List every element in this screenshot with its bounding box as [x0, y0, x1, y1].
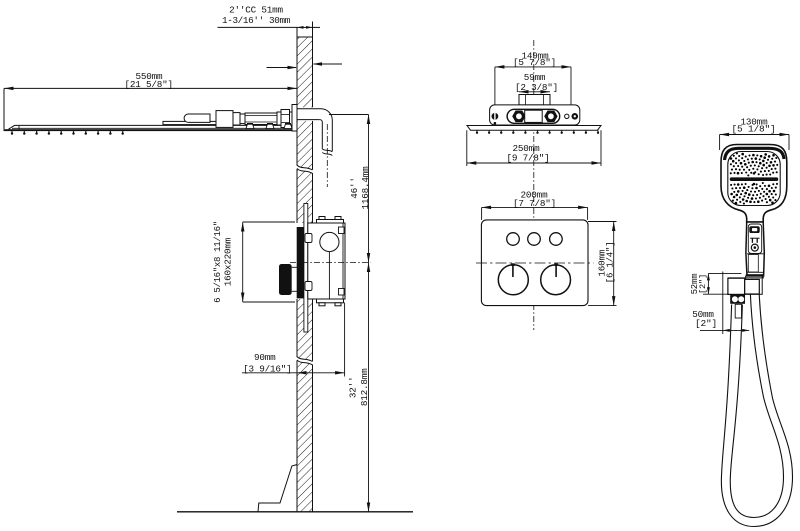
svg-text:1168.4mm: 1168.4mm	[360, 166, 371, 210]
svg-text:90mm: 90mm	[254, 352, 276, 363]
svg-text:812.8mm: 812.8mm	[359, 368, 370, 406]
svg-text:[2"]: [2"]	[695, 318, 717, 329]
svg-text:2''CC 51mm: 2''CC 51mm	[229, 5, 283, 16]
svg-text:[5 7/8"]: [5 7/8"]	[513, 57, 556, 68]
svg-text:46'': 46''	[349, 177, 360, 199]
svg-text:32'': 32''	[348, 377, 359, 399]
svg-text:1-3/16'' 30mm: 1-3/16'' 30mm	[222, 15, 291, 26]
svg-text:[6 1/4"]: [6 1/4"]	[605, 242, 615, 284]
svg-text:160x220mm: 160x220mm	[223, 237, 234, 286]
svg-text:[2 3/8"]: [2 3/8"]	[515, 82, 558, 93]
svg-text:[5 1/8"]: [5 1/8"]	[731, 124, 775, 135]
svg-text:[9 7/8"]: [9 7/8"]	[506, 153, 549, 164]
svg-text:[2"]: [2"]	[698, 274, 708, 294]
